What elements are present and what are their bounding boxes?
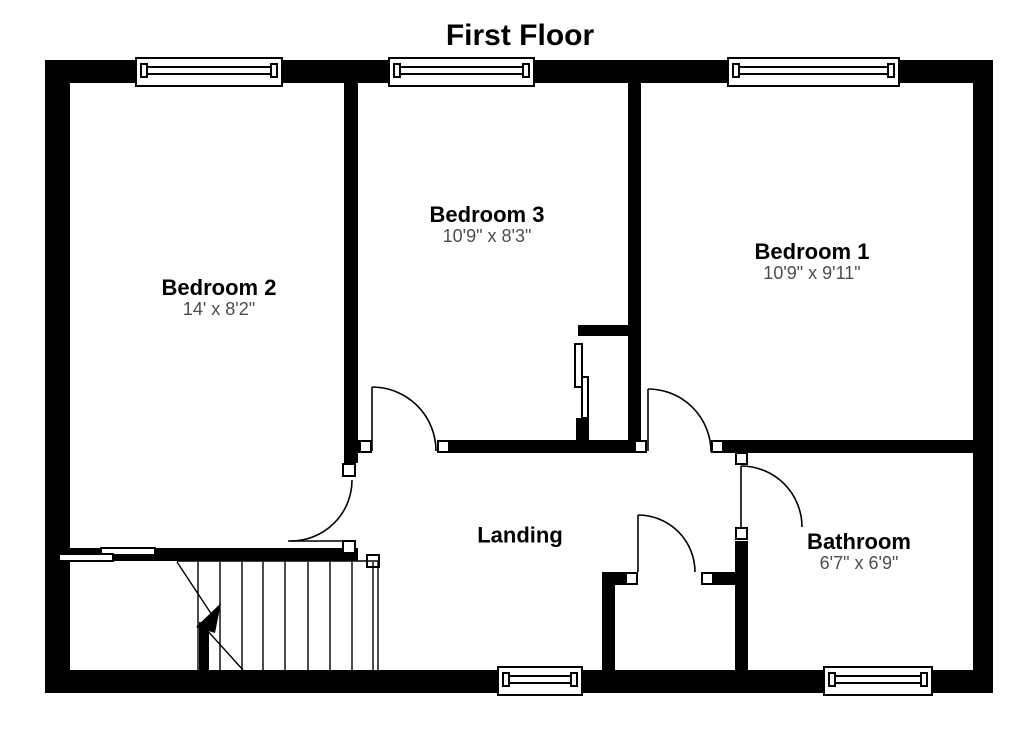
stair-right-rail: [373, 562, 378, 670]
room-label-bedroom3: Bedroom 3 10'9" x 8'3": [430, 203, 545, 247]
room-name: Bedroom 1: [755, 240, 870, 263]
staircase: [177, 561, 380, 670]
room-label-bedroom1: Bedroom 1 10'9" x 9'11": [755, 240, 870, 284]
plan-title: First Floor: [446, 19, 594, 53]
room-dimensions: 14' x 8'2": [162, 299, 277, 320]
room-dimensions: 10'9" x 8'3": [430, 226, 545, 247]
room-name: Bathroom: [807, 530, 911, 553]
floor-plan: First Floor: [0, 0, 1024, 738]
room-name: Bedroom 3: [430, 203, 545, 226]
room-name: Landing: [477, 523, 563, 546]
door-arc-cupboard: [638, 515, 695, 572]
stair-treads: [198, 562, 352, 670]
stair-direction-arrow: [196, 603, 221, 633]
room-dimensions: 10'9" x 9'11": [755, 263, 870, 284]
room-label-landing: Landing: [477, 523, 563, 546]
door-arc-bathroom: [741, 466, 802, 527]
room-dimensions: 6'7" x 6'9": [807, 553, 911, 574]
door-arc-bedroom1: [648, 389, 711, 452]
room-name: Bedroom 2: [162, 276, 277, 299]
room-label-bedroom2: Bedroom 2 14' x 8'2": [162, 276, 277, 320]
door-arc-bedroom3: [372, 387, 436, 451]
room-label-bathroom: Bathroom 6'7" x 6'9": [807, 530, 911, 574]
doors-and-stairs-overlay: [0, 0, 1024, 738]
door-arc-bedroom2: [290, 480, 352, 541]
